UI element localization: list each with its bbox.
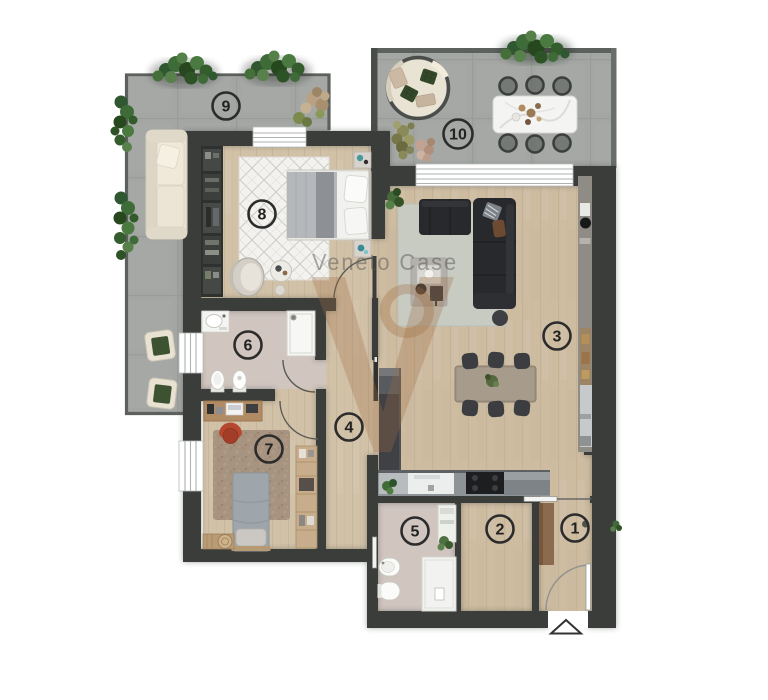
svg-text:5: 5 — [411, 524, 420, 541]
svg-text:3: 3 — [553, 329, 562, 346]
svg-text:2: 2 — [496, 522, 505, 539]
svg-text:1: 1 — [571, 521, 580, 538]
svg-text:4: 4 — [345, 420, 354, 437]
svg-text:7: 7 — [265, 442, 274, 459]
svg-text:8: 8 — [258, 207, 267, 224]
svg-text:Veneto Case: Veneto Case — [312, 249, 458, 275]
svg-text:9: 9 — [222, 99, 231, 116]
svg-text:6: 6 — [244, 338, 253, 355]
svg-text:10: 10 — [449, 127, 467, 144]
